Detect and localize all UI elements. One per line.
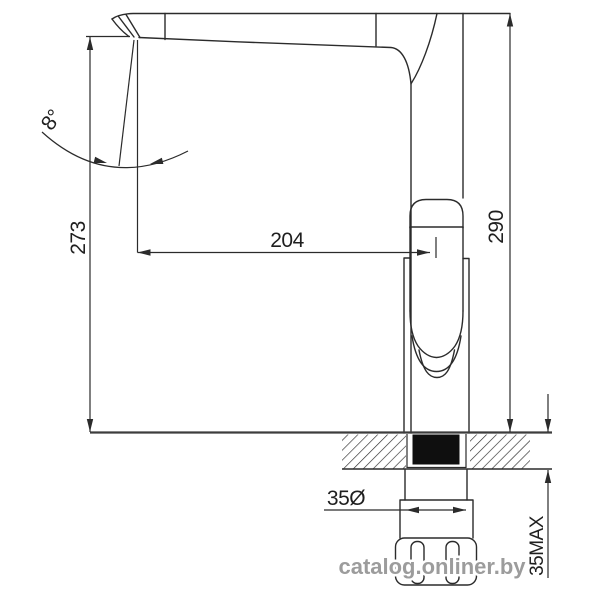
dim-35max-arrow-up — [545, 470, 551, 483]
drawing-page: 273 204 290 8° 35Ø 35MAX catalog.onliner… — [0, 0, 600, 600]
dim-label-35-diameter: 35Ø — [327, 487, 365, 510]
dim-35-arrow-right — [453, 507, 466, 513]
dim-label-290: 290 — [485, 210, 508, 244]
shank-flange — [400, 500, 473, 538]
faucet-outline — [112, 14, 510, 434]
technical-drawing: 273 204 290 8° 35Ø 35MAX catalog.onliner… — [0, 0, 600, 600]
spout-tip — [112, 15, 140, 38]
handle-top-cap — [410, 200, 463, 229]
angle-slant-line — [119, 40, 134, 166]
dim-label-273: 273 — [67, 221, 90, 255]
watermark-text: catalog.onliner.by — [338, 554, 526, 579]
spout-seam-lines — [165, 14, 376, 47]
dim-35max-arrow-down — [545, 419, 551, 432]
dim-35-arrow-left — [406, 507, 419, 513]
dim-204-arrow-right — [417, 249, 430, 255]
mount-seal-black — [413, 435, 460, 465]
dim-273-lines — [86, 37, 130, 433]
dimension-273: 273 — [67, 37, 130, 433]
spout-top-edge — [112, 14, 510, 20]
deck-hatch-left — [342, 435, 406, 470]
dimension-290: 290 — [485, 14, 513, 433]
dim-label-angle: 8° — [37, 106, 67, 135]
dimension-angle-8: 8° — [37, 40, 188, 168]
mounting-shank — [400, 470, 473, 538]
dim-label-35max: 35MAX — [527, 515, 548, 576]
dimension-35max: 35MAX — [527, 394, 551, 578]
countertop-section — [90, 433, 552, 470]
dim-273-arrow-up — [87, 37, 93, 50]
shank-walls — [405, 470, 467, 500]
angle-arc — [42, 132, 188, 168]
dimension-204: 204 — [138, 40, 437, 258]
dim-204-arrow-left — [138, 249, 151, 255]
dim-273-arrow-down — [87, 419, 93, 432]
deck-hatch-right — [470, 435, 530, 470]
handle-tip-crescent-inner — [419, 350, 455, 378]
faucet-handle — [410, 200, 463, 378]
body-seam-curve — [412, 14, 438, 84]
dim-290-arrow-down — [507, 419, 513, 432]
spout-underside — [139, 38, 411, 85]
angle-arrow-right — [149, 158, 163, 167]
dim-label-204: 204 — [270, 229, 304, 252]
dim-204-lines — [138, 40, 437, 258]
dim-290-arrow-up — [507, 14, 513, 27]
